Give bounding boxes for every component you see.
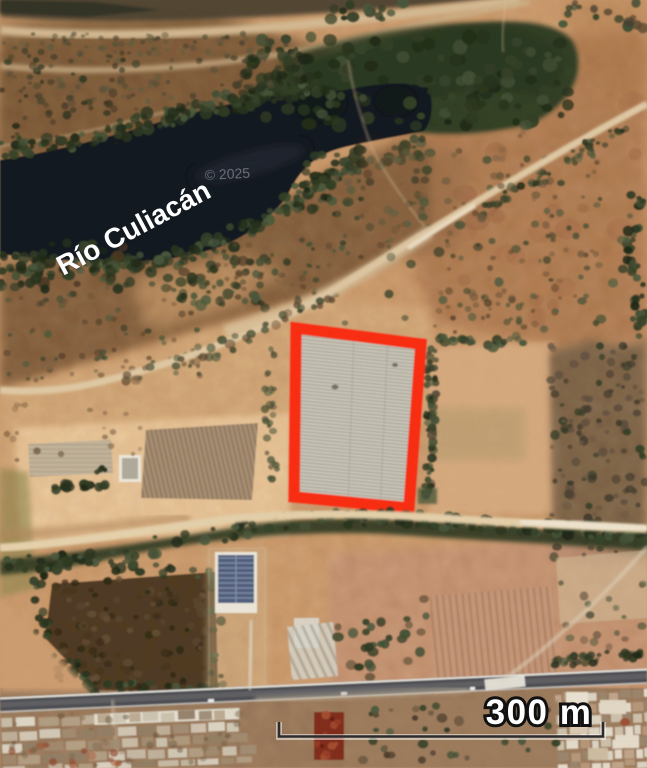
svg-text:© 2025: © 2025 [204,165,250,183]
svg-text:300 m: 300 m [486,693,593,732]
